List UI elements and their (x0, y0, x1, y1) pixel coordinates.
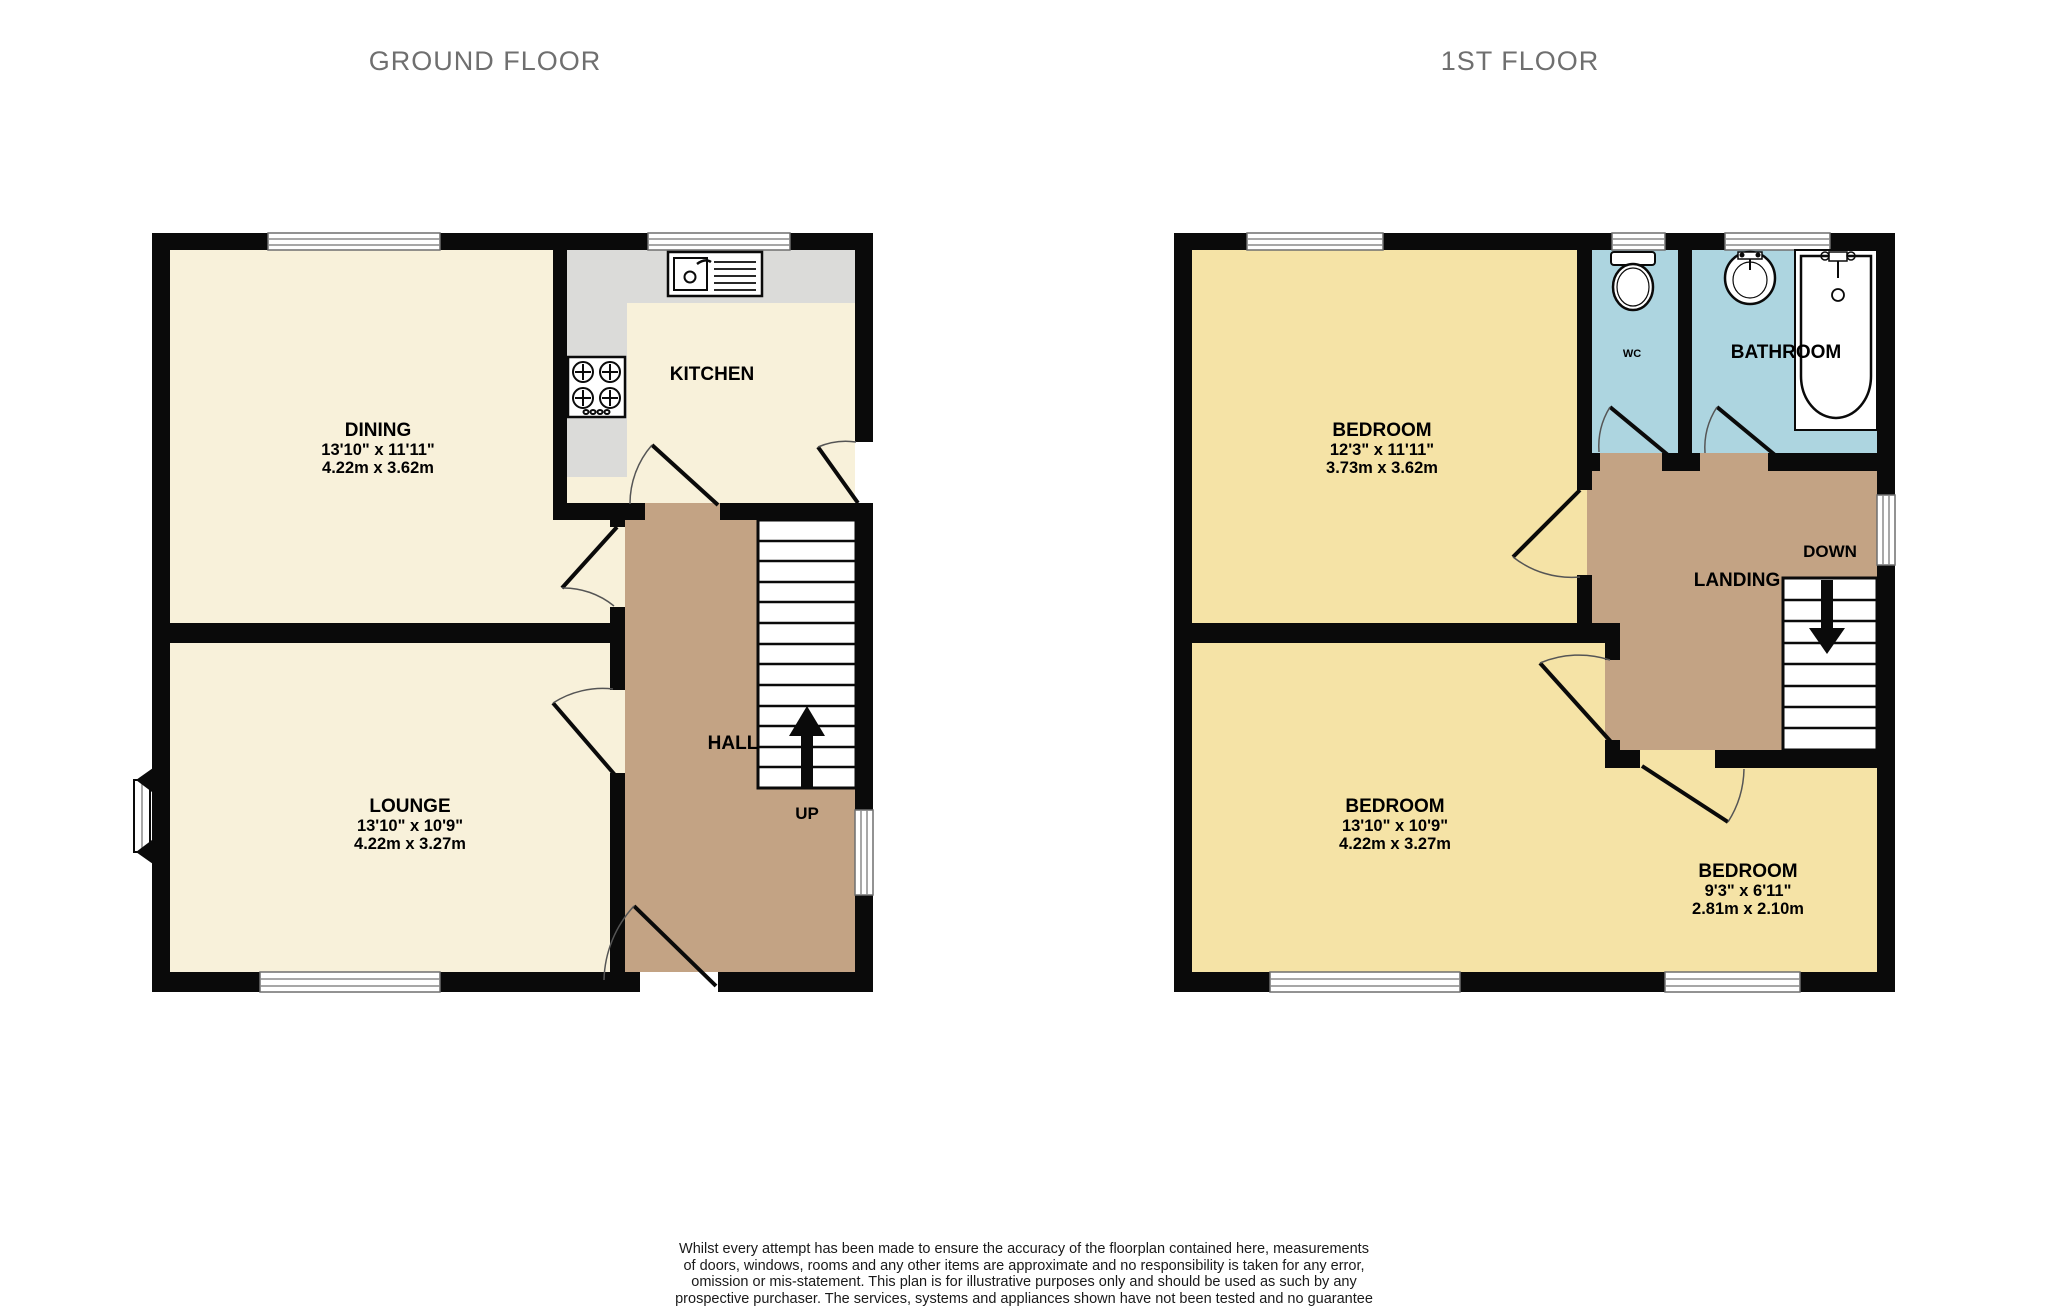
wall-dining-kitchen (553, 250, 567, 503)
staircase-up (758, 520, 856, 788)
window-dining-top (268, 233, 440, 250)
window-bedroom3-bottom (1665, 972, 1800, 992)
basin-icon (1725, 252, 1775, 304)
staircase-down (1783, 578, 1877, 750)
bedroom3-label: BEDROOM (1698, 861, 1797, 882)
window-bedroom1-top (1247, 233, 1383, 250)
stove-hob-icon (568, 357, 625, 417)
bedroom2-imperial: 13'10" x 10'9" (1342, 817, 1448, 835)
kitchen-label: KITCHEN (670, 364, 754, 385)
window-hall-right (855, 810, 873, 895)
first-floor-plan: BEDROOM 12'3" x 11'11" 3.73m x 3.62m WC … (1174, 233, 1895, 992)
down-label: DOWN (1803, 542, 1857, 561)
bathroom-label: BATHROOM (1731, 342, 1841, 363)
disclaimer-text: Whilst every attempt has been made to en… (0, 1241, 2048, 1308)
kitchen-sink-icon (668, 252, 762, 296)
bedroom2-label: BEDROOM (1345, 796, 1444, 817)
bedroom3-imperial: 9'3" x 6'11" (1705, 882, 1792, 900)
bathtub-icon (1795, 250, 1877, 430)
toilet-icon (1611, 252, 1655, 310)
back-door-opening (855, 442, 873, 503)
disclaimer-line: prospective purchaser. The services, sys… (0, 1291, 2048, 1308)
wall-dining-lounge (170, 623, 625, 643)
bedroom1-label: BEDROOM (1332, 420, 1431, 441)
dining-metric: 4.22m x 3.62m (322, 459, 434, 477)
window-landing-right (1877, 495, 1895, 565)
dining-imperial: 13'10" x 11'11" (321, 441, 434, 459)
bedroom2-metric: 4.22m x 3.27m (1339, 835, 1451, 853)
hall-label: HALL (708, 733, 759, 754)
floorplan-drawing: DINING 13'10" x 11'11" 4.22m x 3.62m KIT… (0, 0, 2048, 1308)
lounge-metric: 4.22m x 3.27m (354, 835, 466, 853)
floorplan-page: GROUND FLOOR 1ST FLOOR (0, 0, 2048, 1308)
wc-label: WC (1623, 348, 1641, 360)
dining-label: DINING (345, 420, 412, 441)
wall-bedroom1-bedroom2 (1192, 623, 1620, 643)
window-lounge-bottom (260, 972, 440, 992)
disclaimer-line: of doors, windows, rooms and any other i… (0, 1258, 2048, 1275)
bedroom1-metric: 3.73m x 3.62m (1326, 459, 1438, 477)
lounge-imperial: 13'10" x 10'9" (357, 817, 463, 835)
bedroom1-imperial: 12'3" x 11'11" (1330, 441, 1434, 459)
window-wc-top (1612, 233, 1665, 250)
disclaimer-line: omission or mis-statement. This plan is … (0, 1274, 2048, 1291)
lounge-label: LOUNGE (369, 796, 450, 817)
window-bedroom2-bottom (1270, 972, 1460, 992)
window-kitchen-top (648, 233, 790, 250)
wall-wc-bathroom (1678, 250, 1692, 453)
ground-floor-plan: DINING 13'10" x 11'11" 4.22m x 3.62m KIT… (134, 233, 873, 992)
landing-label: LANDING (1694, 570, 1781, 591)
bedroom3-metric: 2.81m x 2.10m (1692, 900, 1804, 918)
up-label: UP (795, 804, 819, 823)
disclaimer-line: Whilst every attempt has been made to en… (0, 1241, 2048, 1258)
window-bathroom-top (1725, 233, 1830, 250)
